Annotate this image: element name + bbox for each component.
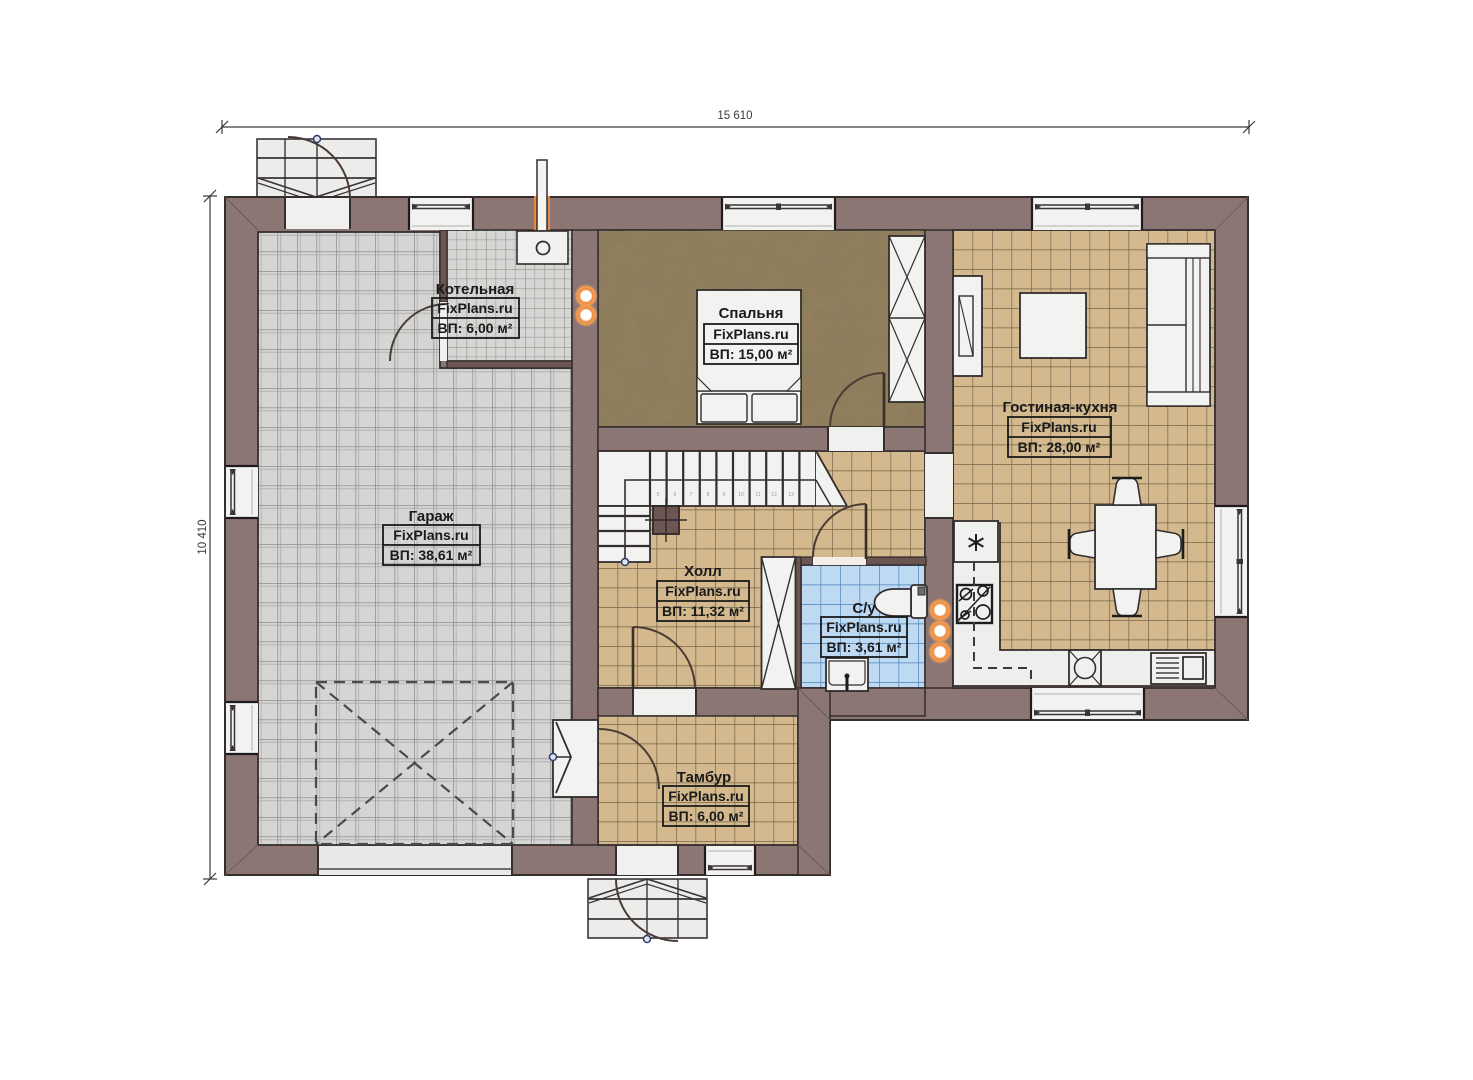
svg-text:FixPlans.ru: FixPlans.ru (1021, 419, 1096, 435)
svg-text:FixPlans.ru: FixPlans.ru (668, 788, 743, 804)
svg-text:FixPlans.ru: FixPlans.ru (713, 326, 788, 342)
svg-text:ВП: 3,61 м²: ВП: 3,61 м² (827, 639, 902, 655)
svg-text:ВП: 6,00 м²: ВП: 6,00 м² (438, 320, 513, 336)
svg-text:15 610: 15 610 (717, 110, 752, 122)
svg-text:12: 12 (771, 492, 777, 498)
svg-text:10 410: 10 410 (197, 519, 209, 554)
svg-text:FixPlans.ru: FixPlans.ru (665, 583, 740, 599)
svg-text:Гараж: Гараж (409, 508, 454, 525)
svg-text:ВП: 11,32 м²: ВП: 11,32 м² (662, 603, 744, 619)
svg-text:Спальня: Спальня (719, 305, 784, 322)
svg-text:11: 11 (755, 492, 760, 498)
svg-text:FixPlans.ru: FixPlans.ru (393, 527, 468, 543)
svg-text:6: 6 (674, 492, 677, 498)
svg-text:9: 9 (723, 492, 726, 498)
svg-text:7: 7 (690, 492, 693, 498)
svg-text:13: 13 (788, 492, 794, 498)
svg-text:5: 5 (657, 492, 660, 498)
svg-text:FixPlans.ru: FixPlans.ru (826, 619, 901, 635)
svg-text:ВП: 28,00 м²: ВП: 28,00 м² (1018, 439, 1101, 455)
svg-text:ВП: 38,61 м²: ВП: 38,61 м² (390, 547, 473, 563)
svg-text:8: 8 (707, 492, 710, 498)
svg-text:FixPlans.ru: FixPlans.ru (437, 300, 512, 316)
svg-text:Котельная: Котельная (436, 281, 515, 298)
svg-text:С/у: С/у (852, 600, 876, 617)
svg-text:ВП: 15,00 м²: ВП: 15,00 м² (710, 346, 793, 362)
svg-text:ВП: 6,00 м²: ВП: 6,00 м² (669, 808, 744, 824)
svg-text:Холл: Холл (684, 563, 722, 580)
svg-text:Гостиная-кухня: Гостиная-кухня (1003, 399, 1118, 416)
svg-text:Тамбур: Тамбур (677, 769, 731, 786)
svg-text:10: 10 (738, 492, 744, 498)
